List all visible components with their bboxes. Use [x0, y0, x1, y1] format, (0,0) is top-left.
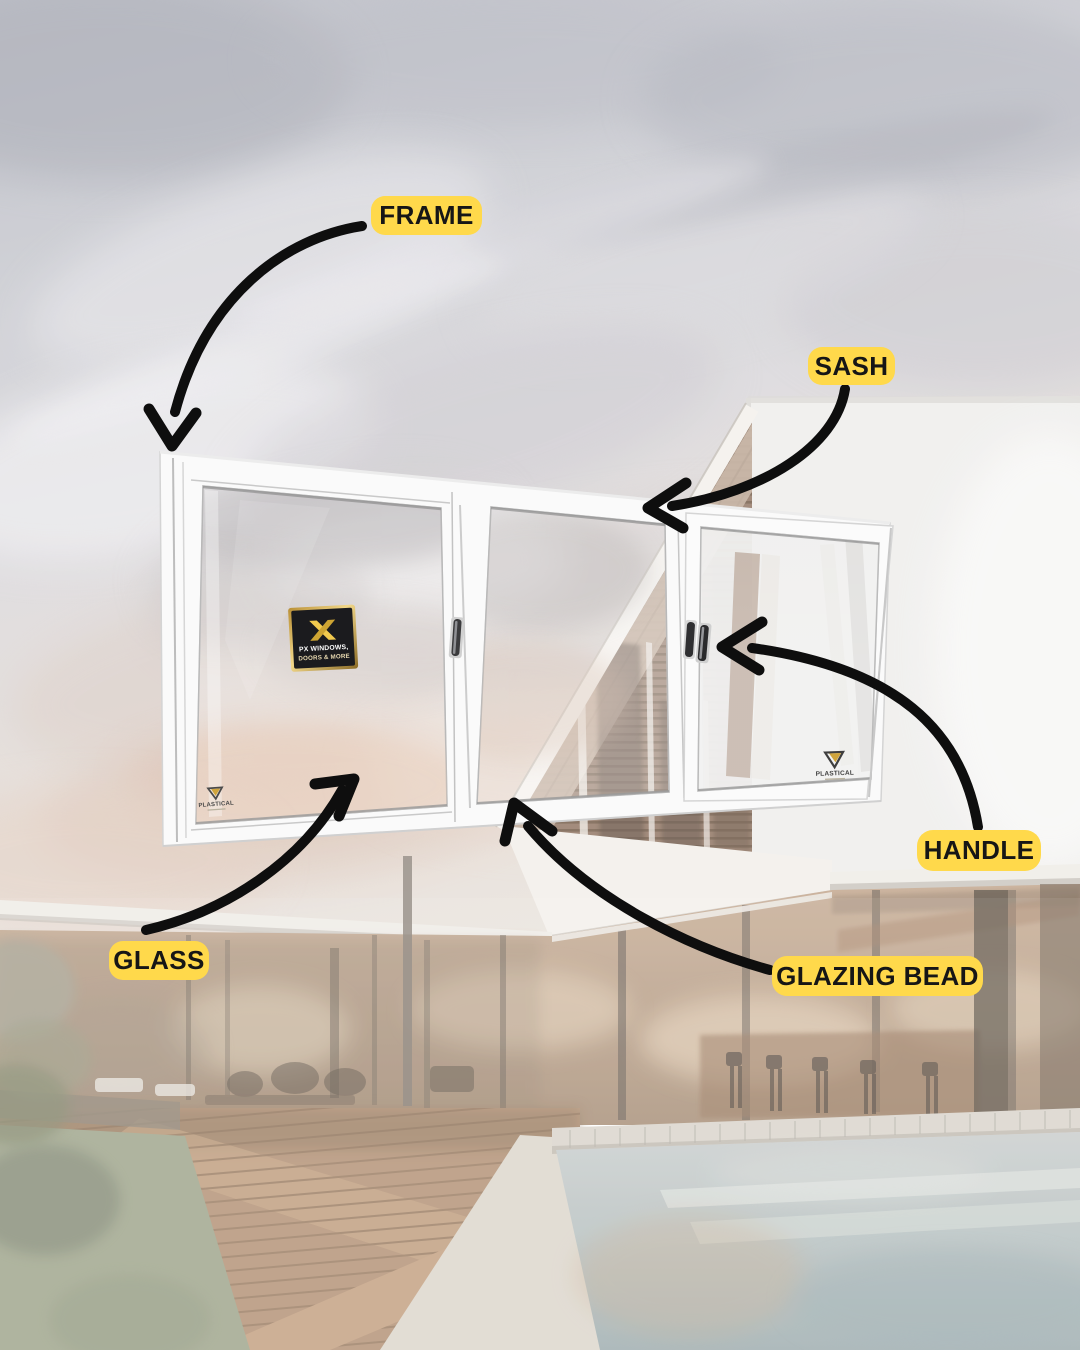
svg-text:PLASTICAL: PLASTICAL	[816, 770, 855, 778]
